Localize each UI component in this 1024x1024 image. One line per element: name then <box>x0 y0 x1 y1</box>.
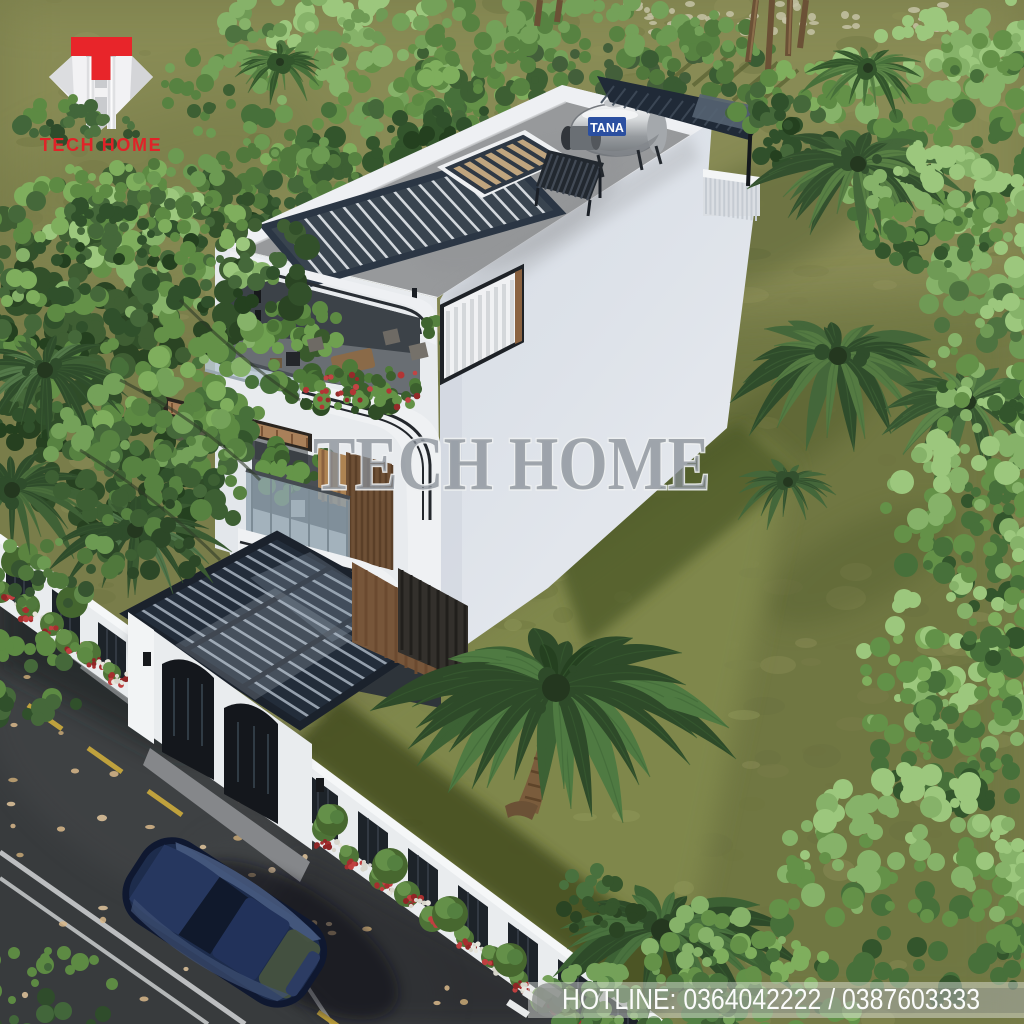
svg-text:TECH HOME: TECH HOME <box>40 135 162 155</box>
svg-text:HOTLINE: 0364042222 / 03876033: HOTLINE: 0364042222 / 0387603333 <box>562 984 980 1016</box>
svg-text:TECH HOME: TECH HOME <box>313 422 710 506</box>
svg-text:TANA: TANA <box>590 121 624 135</box>
